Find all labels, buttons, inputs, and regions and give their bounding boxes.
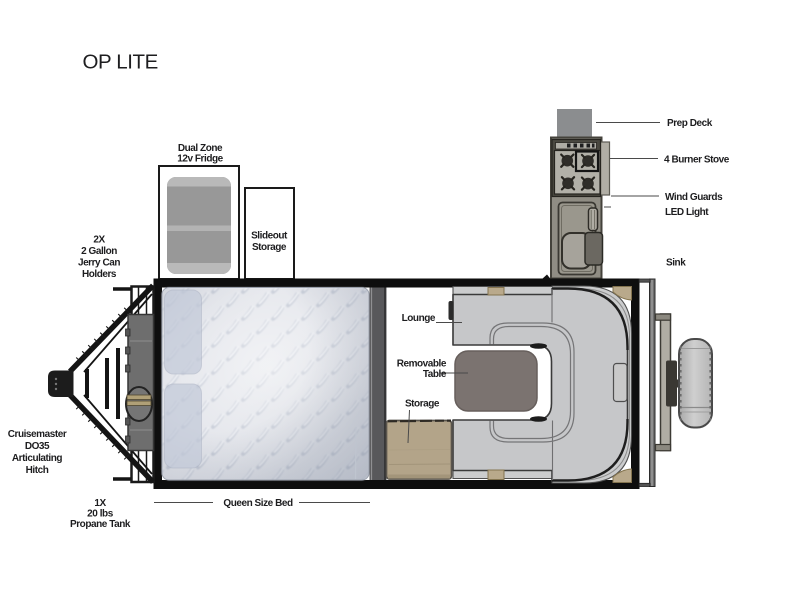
svg-text:Wind Guards: Wind Guards	[665, 192, 723, 203]
svg-text:Lounge: Lounge	[402, 313, 436, 324]
svg-text:SlideoutStorage: SlideoutStorage	[251, 231, 288, 254]
svg-text:4 Burner Stove: 4 Burner Stove	[664, 155, 730, 166]
svg-text:CruisemasterDO35ArticulatingHi: CruisemasterDO35ArticulatingHitch	[8, 429, 67, 476]
svg-text:Sink: Sink	[666, 258, 686, 269]
svg-text:OP LITE: OP LITE	[83, 51, 158, 74]
svg-text:Storage: Storage	[405, 399, 440, 410]
svg-text:Queen Size Bed: Queen Size Bed	[223, 498, 293, 509]
svg-text:LED Light: LED Light	[665, 207, 709, 218]
svg-text:Prep Deck: Prep Deck	[667, 118, 713, 129]
svg-text:2X2 GallonJerry CanHolders: 2X2 GallonJerry CanHolders	[78, 235, 120, 281]
svg-text:1X20 lbsPropane Tank: 1X20 lbsPropane Tank	[70, 498, 131, 530]
svg-text:Dual Zone12v Fridge: Dual Zone12v Fridge	[177, 143, 223, 165]
